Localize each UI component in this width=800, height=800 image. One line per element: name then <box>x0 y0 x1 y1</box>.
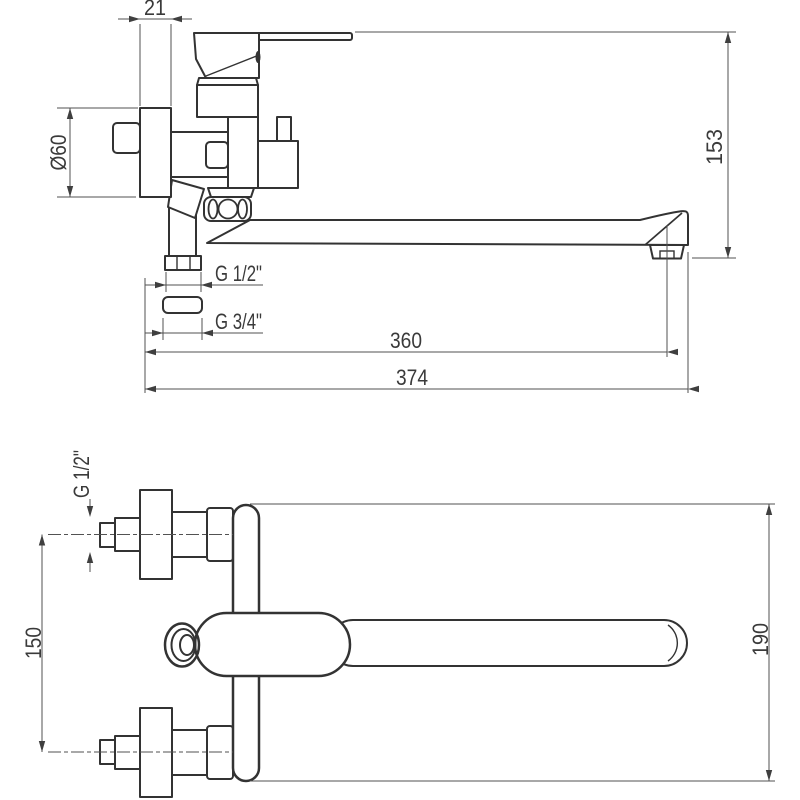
arrow <box>155 282 166 288</box>
body-column <box>228 117 258 188</box>
connector-step <box>206 142 228 168</box>
arrow <box>39 535 45 546</box>
spout-plan <box>330 620 687 666</box>
inlet-connector-side <box>113 123 140 153</box>
diverter-knob <box>277 117 291 141</box>
shower-hex-nut <box>165 256 201 270</box>
dim-escutcheon-depth: 21 <box>118 0 192 106</box>
dim-label-d60: Ø60 <box>46 135 71 171</box>
arrow <box>667 349 678 355</box>
lever-knob-mid <box>172 629 196 661</box>
hose-fitting-g34 <box>163 297 202 313</box>
arrow <box>145 349 156 355</box>
spout-nut-collar <box>208 188 254 197</box>
dim-inlet-spacing: 150 <box>21 535 46 753</box>
escutcheon-side <box>140 108 171 197</box>
cartridge-collar <box>197 78 258 85</box>
dim-inlet-thread: G 1/2" <box>69 450 94 572</box>
lever-knob-inner <box>180 635 194 655</box>
faucet-technical-drawing: 21 Ø60 153 G 1/2" <box>0 0 800 800</box>
arrow <box>725 247 731 258</box>
dim-label-g12-plan: G 1/2" <box>69 450 94 498</box>
dim-shower-thread: G 1/2" <box>145 261 263 292</box>
spout-outline <box>207 211 688 245</box>
arrow <box>171 16 182 22</box>
handle-plan <box>195 613 350 676</box>
dim-label-190: 190 <box>748 623 773 656</box>
dim-label-374: 374 <box>396 365 428 390</box>
dim-label-150: 150 <box>21 627 46 659</box>
arrow <box>688 386 699 392</box>
lever-hub <box>194 33 259 78</box>
plan-view: G 1/2" 150 190 <box>21 450 775 797</box>
arrow <box>67 108 73 119</box>
arrow <box>766 770 772 781</box>
arrow <box>67 186 73 197</box>
dim-label-g34: G 3/4" <box>215 309 262 334</box>
arrow <box>87 552 93 563</box>
dim-hose-thread: G 3/4" <box>145 309 263 340</box>
arrow <box>201 282 212 288</box>
arrow <box>39 741 45 752</box>
cartridge-housing <box>197 85 258 117</box>
dim-label-360: 360 <box>390 328 422 353</box>
technical-drawing-page: 21 Ø60 153 G 1/2" <box>0 0 800 800</box>
shower-outlet-block <box>258 141 298 188</box>
arrow <box>87 506 93 517</box>
arrow <box>766 504 772 515</box>
dim-label-g12-side: G 1/2" <box>215 261 262 286</box>
arrow <box>202 330 213 336</box>
arrow <box>725 32 731 43</box>
arrow <box>152 330 163 336</box>
dim-label-153: 153 <box>702 129 727 165</box>
arrow <box>145 386 156 392</box>
arrow <box>129 16 140 22</box>
lever-pivot-dot <box>256 51 261 63</box>
dim-label-21: 21 <box>144 0 166 20</box>
side-view: 21 Ø60 153 G 1/2" <box>46 0 736 393</box>
